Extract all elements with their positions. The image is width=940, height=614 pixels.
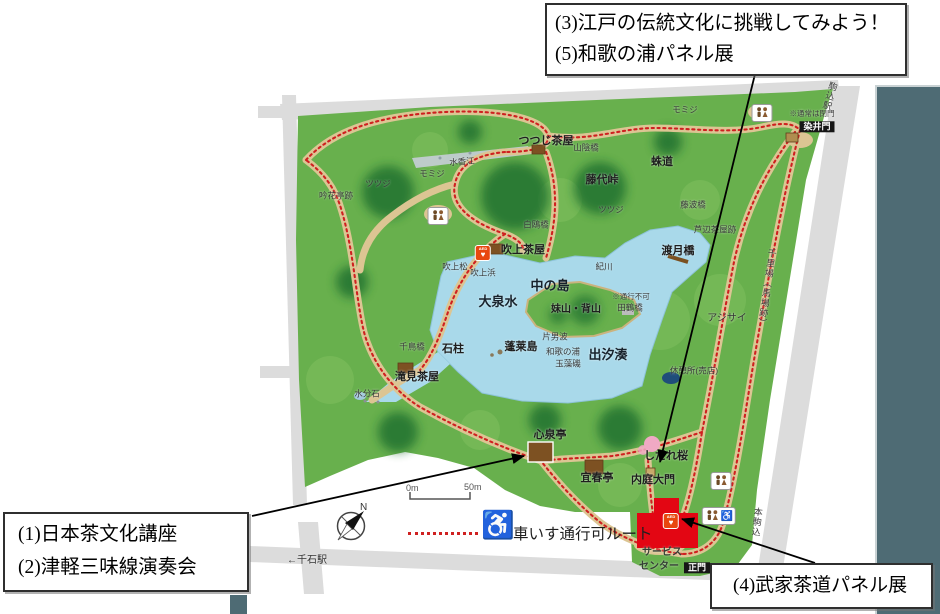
callout-line: (3)江戸の伝統文化に挑戦してみよう！	[555, 8, 897, 39]
callout-events-3-5: (3)江戸の伝統文化に挑戦してみよう！ (5)和歌の浦パネル展	[545, 3, 907, 76]
callout-line: (5)和歌の浦パネル展	[555, 39, 897, 70]
callout-events-1-2: (1)日本茶文化講座 (2)津軽三味線演奏会	[3, 512, 249, 592]
callout-line: (1)日本茶文化講座	[18, 518, 247, 551]
rikugien-map-slide: つつじ茶屋山陰橋蛛道藤代峠ツツジ白鴎橋モミジモミジ水香江ツツジ吟花亭跡吹上茶屋吹…	[0, 0, 940, 614]
arrow-to-naitei-daimon	[660, 70, 756, 462]
arrow-to-shinsentei	[252, 456, 524, 516]
callout-line: (4)武家茶道パネル展	[733, 573, 931, 599]
callout-line: (2)津軽三味線演奏会	[18, 551, 247, 584]
callout-event-4: (4)武家茶道パネル展	[710, 563, 933, 609]
arrow-to-service-center	[682, 519, 815, 563]
